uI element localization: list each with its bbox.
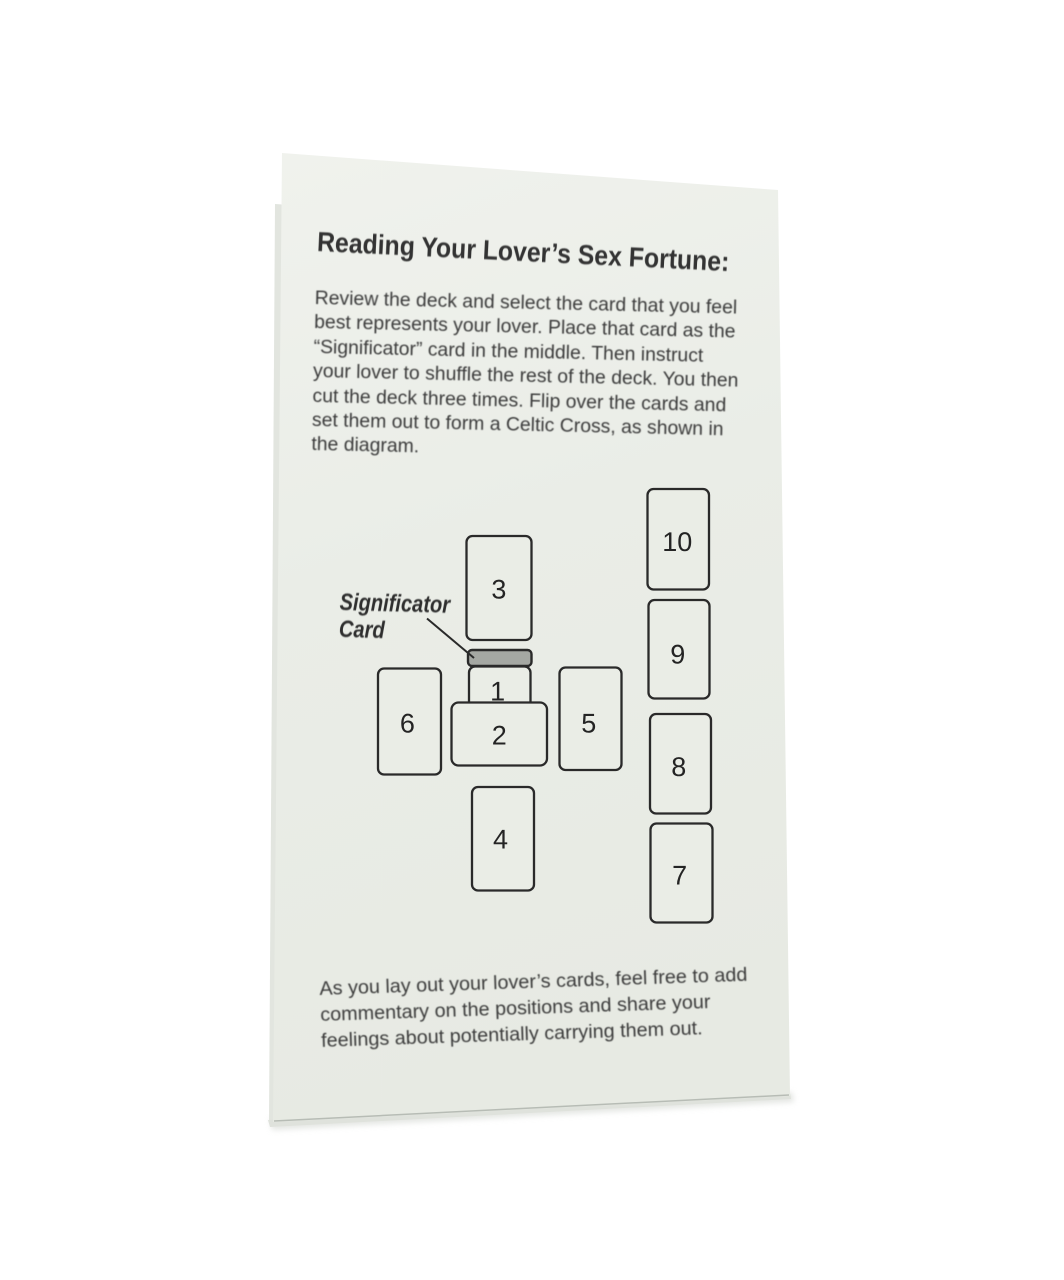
svg-text:4: 4 bbox=[493, 824, 508, 854]
svg-text:9: 9 bbox=[670, 640, 685, 670]
svg-text:6: 6 bbox=[400, 709, 415, 739]
svg-text:5: 5 bbox=[581, 709, 596, 739]
svg-text:10: 10 bbox=[662, 527, 692, 557]
svg-text:7: 7 bbox=[672, 861, 687, 891]
svg-text:3: 3 bbox=[491, 574, 506, 604]
svg-text:8: 8 bbox=[671, 752, 686, 782]
svg-text:2: 2 bbox=[492, 721, 507, 751]
